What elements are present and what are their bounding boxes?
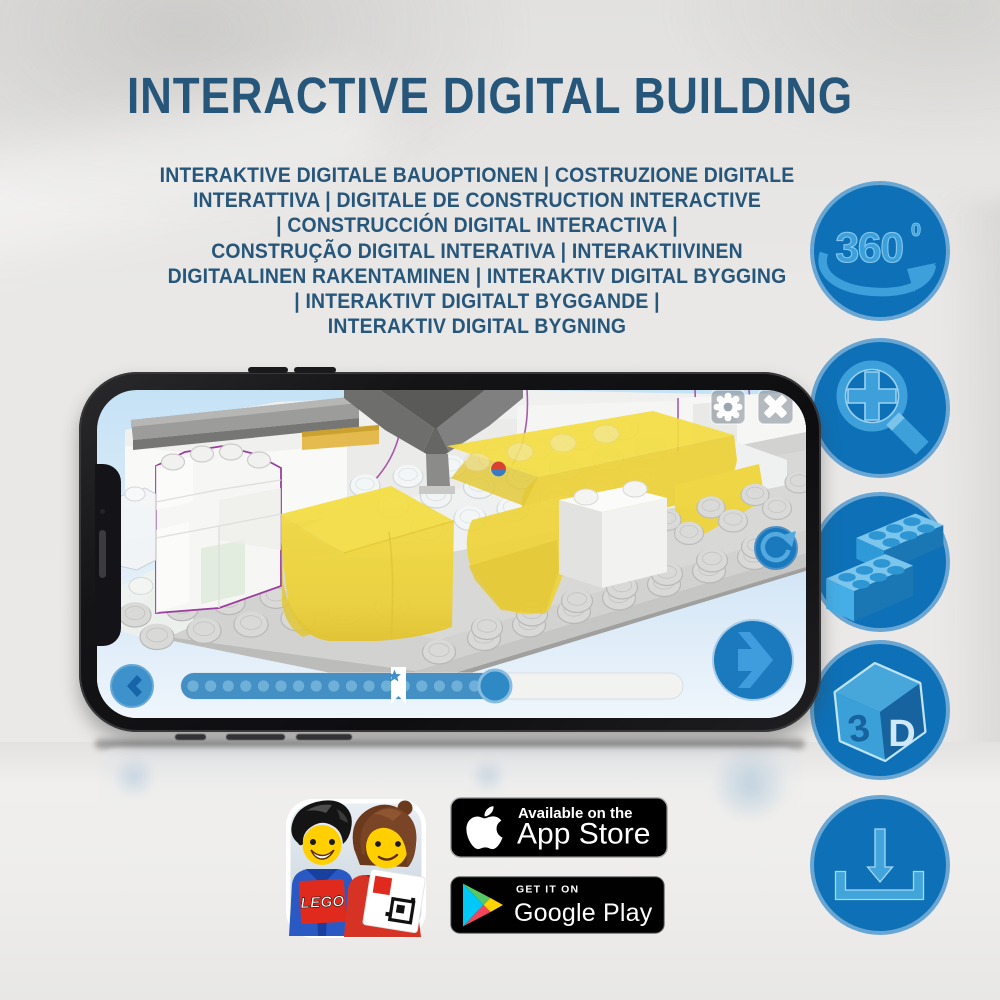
svg-text:D: D [888, 713, 915, 755]
svg-text:0: 0 [911, 220, 921, 240]
svg-text:LEGO: LEGO [300, 893, 345, 912]
svg-text:GET IT ON: GET IT ON [516, 884, 579, 896]
svg-text:Google Play: Google Play [514, 899, 653, 927]
svg-text:360: 360 [835, 224, 903, 272]
svg-text:App Store: App Store [517, 818, 650, 851]
